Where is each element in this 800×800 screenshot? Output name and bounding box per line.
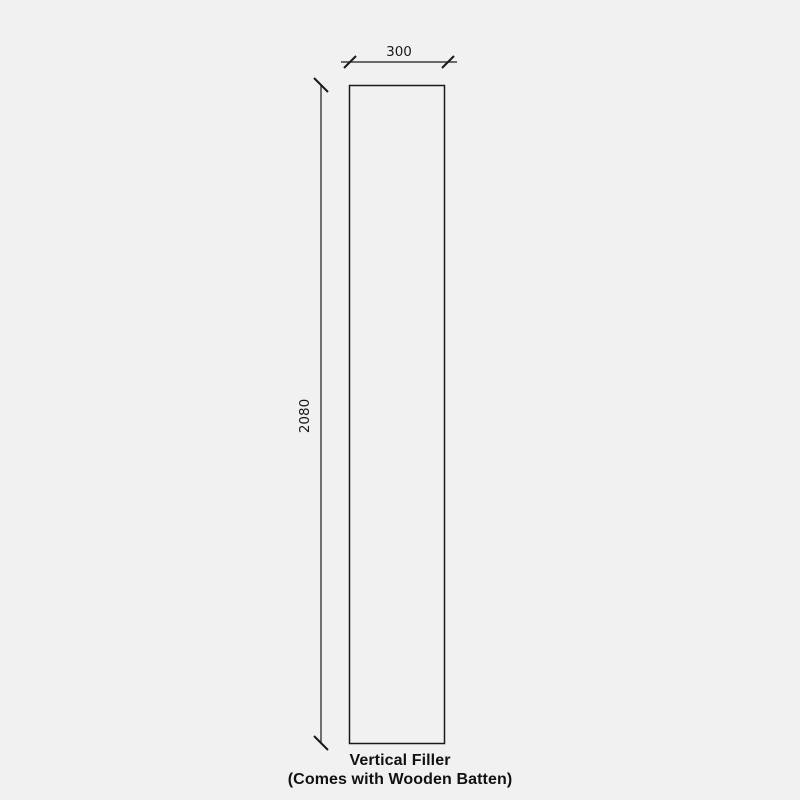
panel-outline [350, 86, 445, 744]
height-dimension: 2080 [297, 78, 328, 750]
caption-subtitle: (Comes with Wooden Batten) [0, 770, 800, 789]
technical-drawing: 300 2080 [0, 0, 800, 800]
height-dimension-label: 2080 [297, 399, 313, 433]
width-dimension-label: 300 [386, 44, 412, 60]
caption-title: Vertical Filler [0, 751, 800, 770]
width-dimension: 300 [341, 44, 457, 68]
caption: Vertical Filler (Comes with Wooden Batte… [0, 751, 800, 789]
